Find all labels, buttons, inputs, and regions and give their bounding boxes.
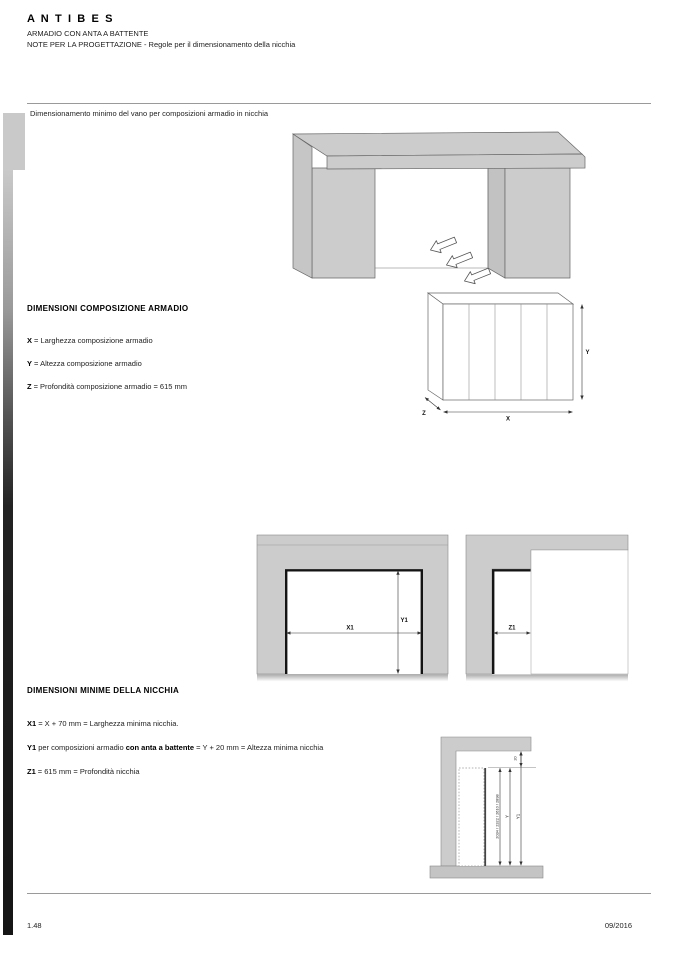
wardrobe-front-face	[443, 304, 573, 400]
right-pier-front	[505, 168, 570, 278]
spec-key: Y	[27, 359, 32, 368]
niche-2d-diagrams: X1 Y1 Z1	[250, 530, 640, 690]
spec-z1: Z1= 615 mm = Profondità nicchia	[27, 767, 140, 776]
wardrobe-top-face	[428, 293, 573, 304]
section-title-nicchia: DIMENSIONI MINIME DELLA NICCHIA	[27, 686, 179, 695]
page-edge-tab	[3, 113, 25, 170]
spec-key: Z	[27, 382, 32, 391]
dim-label-x: X	[506, 417, 510, 423]
header-subtitle-1: ARMADIO CON ANTA A BATTENTE	[27, 28, 295, 39]
dim-label-heights: 2034 / 2322 / 2610 / 2898	[495, 794, 500, 838]
page-number: 1.48	[27, 921, 42, 930]
spec-text: = Larghezza composizione armadio	[34, 336, 153, 345]
left-wall-outer-face	[293, 134, 312, 278]
catalog-page: { "header": { "brand": "A N T I B E S", …	[0, 0, 678, 959]
top-slab-face	[293, 132, 582, 156]
room-area	[531, 550, 628, 674]
right-pier-inner-face	[488, 168, 505, 278]
niche-side-section-diagram: 2034 / 2322 / 2610 / 2898 Y Y1 20	[425, 730, 550, 885]
wardrobe-3d-diagram: Y X Z	[415, 285, 600, 425]
spec-key: X1	[27, 719, 36, 728]
niche-depth-view: Z1	[466, 535, 628, 681]
spec-x1: X1= X + 70 mm = Larghezza minima nicchia…	[27, 719, 178, 728]
header-subtitle-2: NOTE PER LA PROGETTAZIONE - Regole per i…	[27, 39, 295, 50]
brand-title: A N T I B E S	[27, 13, 295, 25]
spec-key: Y1	[27, 743, 36, 752]
intro-caption: Dimensionamento minimo del vano per comp…	[30, 109, 268, 118]
dim-label-z1: Z1	[508, 626, 516, 632]
dim-label-side-y: Y	[504, 815, 509, 818]
dim-line-z	[425, 398, 441, 411]
edition-date: 09/2016	[598, 921, 632, 930]
wardrobe-side-section	[459, 768, 484, 866]
spec-post: = Y + 20 mm = Altezza minima nicchia	[194, 743, 323, 752]
spec-post: = X + 70 mm = Larghezza minima nicchia.	[38, 719, 178, 728]
dim-label-y1: Y1	[401, 618, 409, 624]
opening-border-depth	[493, 570, 530, 674]
section-title-composizione: DIMENSIONI COMPOSIZIONE ARMADIO	[27, 304, 188, 313]
spec-text: = Profondità composizione armadio = 615 …	[34, 382, 187, 391]
page-header: A N T I B E S ARMADIO CON ANTA A BATTENT…	[27, 13, 295, 50]
page-edge-strip	[3, 170, 13, 935]
dim-label-side-y1: Y1	[515, 813, 520, 819]
spec-pre: per composizioni armadio	[38, 743, 126, 752]
niche-front-view: X1 Y1	[257, 535, 448, 681]
spec-y1: Y1per composizioni armadio con anta a ba…	[27, 743, 323, 752]
spec-key: Z1	[27, 767, 36, 776]
spec-text: = Altezza composizione armadio	[34, 359, 142, 368]
dim-label-x1: X1	[346, 626, 354, 632]
spec-x: X= Larghezza composizione armadio	[27, 336, 153, 345]
header-divider	[27, 103, 651, 104]
dim-label-gap-20: 20	[513, 756, 518, 761]
spec-z: Z= Profondità composizione armadio = 615…	[27, 382, 187, 391]
floor-section	[430, 866, 543, 878]
insert-arrows-icon	[428, 234, 492, 287]
arrow-icon	[428, 234, 458, 256]
floor-shadow	[257, 674, 448, 681]
spec-bold: con anta a battente	[126, 743, 194, 752]
footer-divider	[27, 893, 651, 894]
left-pier-front	[312, 168, 375, 278]
wardrobe-side-face	[428, 293, 443, 400]
top-slab-fascia	[327, 154, 585, 169]
spec-post: = 615 mm = Profondità nicchia	[38, 767, 140, 776]
niche-3d-diagram	[280, 118, 650, 293]
floor-shadow	[466, 674, 628, 681]
dim-label-y: Y	[586, 350, 590, 356]
spec-key: X	[27, 336, 32, 345]
spec-y: Y= Altezza composizione armadio	[27, 359, 142, 368]
niche-floor-lines	[375, 168, 505, 278]
dim-label-z: Z	[422, 411, 426, 417]
